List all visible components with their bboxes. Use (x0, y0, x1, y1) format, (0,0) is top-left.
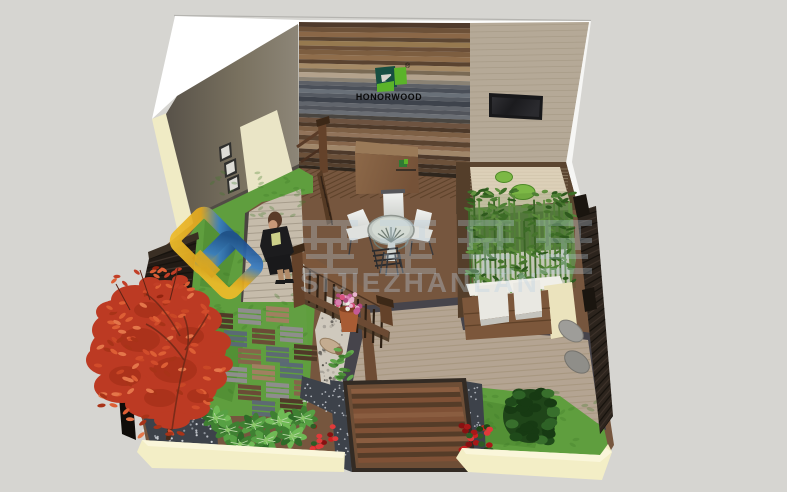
svg-text:SIJIEZHANLAN: SIJIEZHANLAN (300, 267, 540, 298)
svg-text:®: ® (405, 62, 411, 70)
svg-text:HONORWOOD: HONORWOOD (356, 92, 422, 102)
